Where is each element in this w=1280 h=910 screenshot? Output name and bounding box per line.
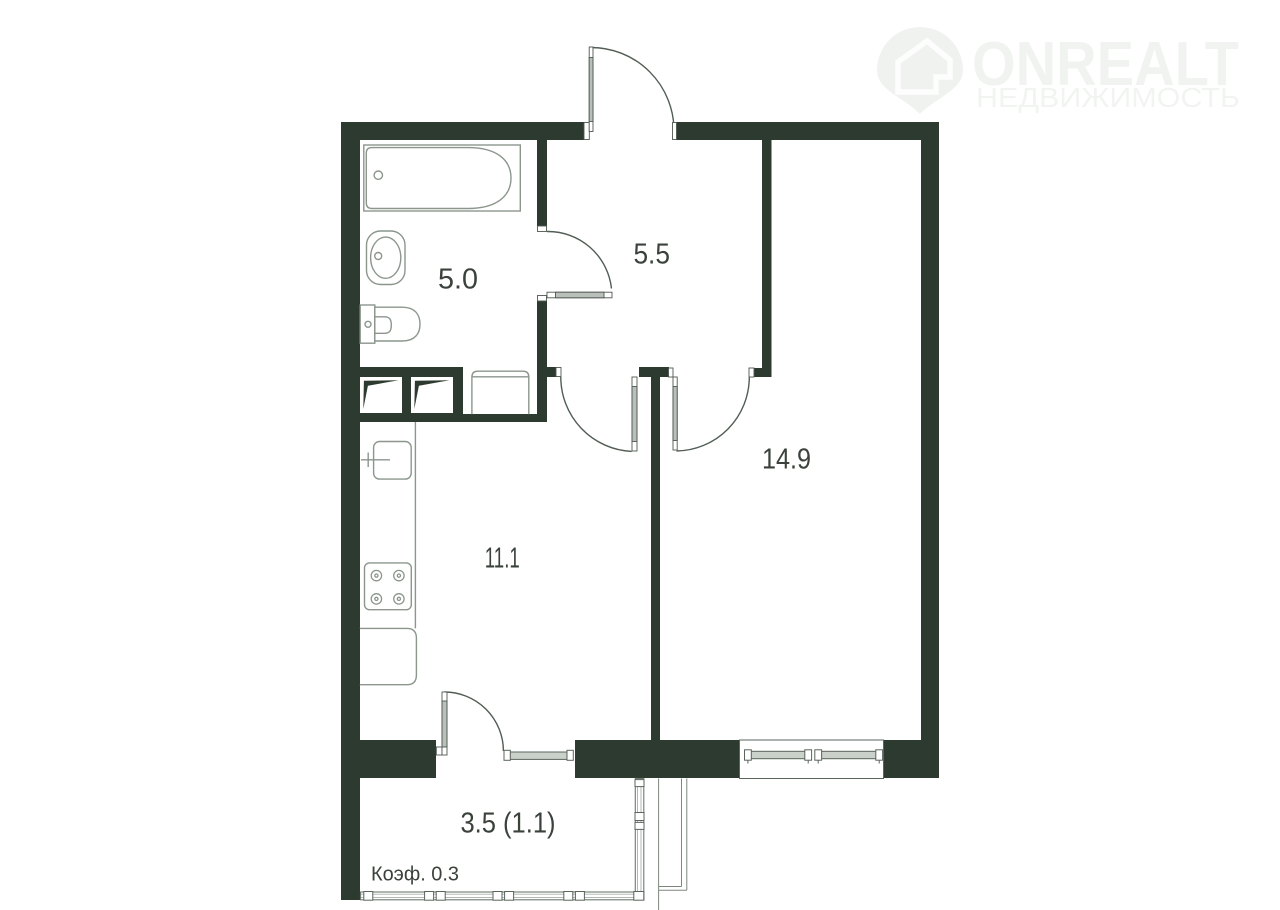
svg-text:НЕДВИЖИМОСТЬ: НЕДВИЖИМОСТЬ bbox=[976, 82, 1240, 113]
svg-text:14.9: 14.9 bbox=[762, 444, 811, 476]
svg-text:5.5: 5.5 bbox=[633, 239, 670, 271]
svg-text:Коэф. 0.3: Коэф. 0.3 bbox=[371, 864, 459, 886]
svg-text:5.0: 5.0 bbox=[438, 264, 478, 296]
svg-text:11.1: 11.1 bbox=[485, 543, 520, 575]
svg-text:3.5 (1.1): 3.5 (1.1) bbox=[461, 808, 556, 840]
